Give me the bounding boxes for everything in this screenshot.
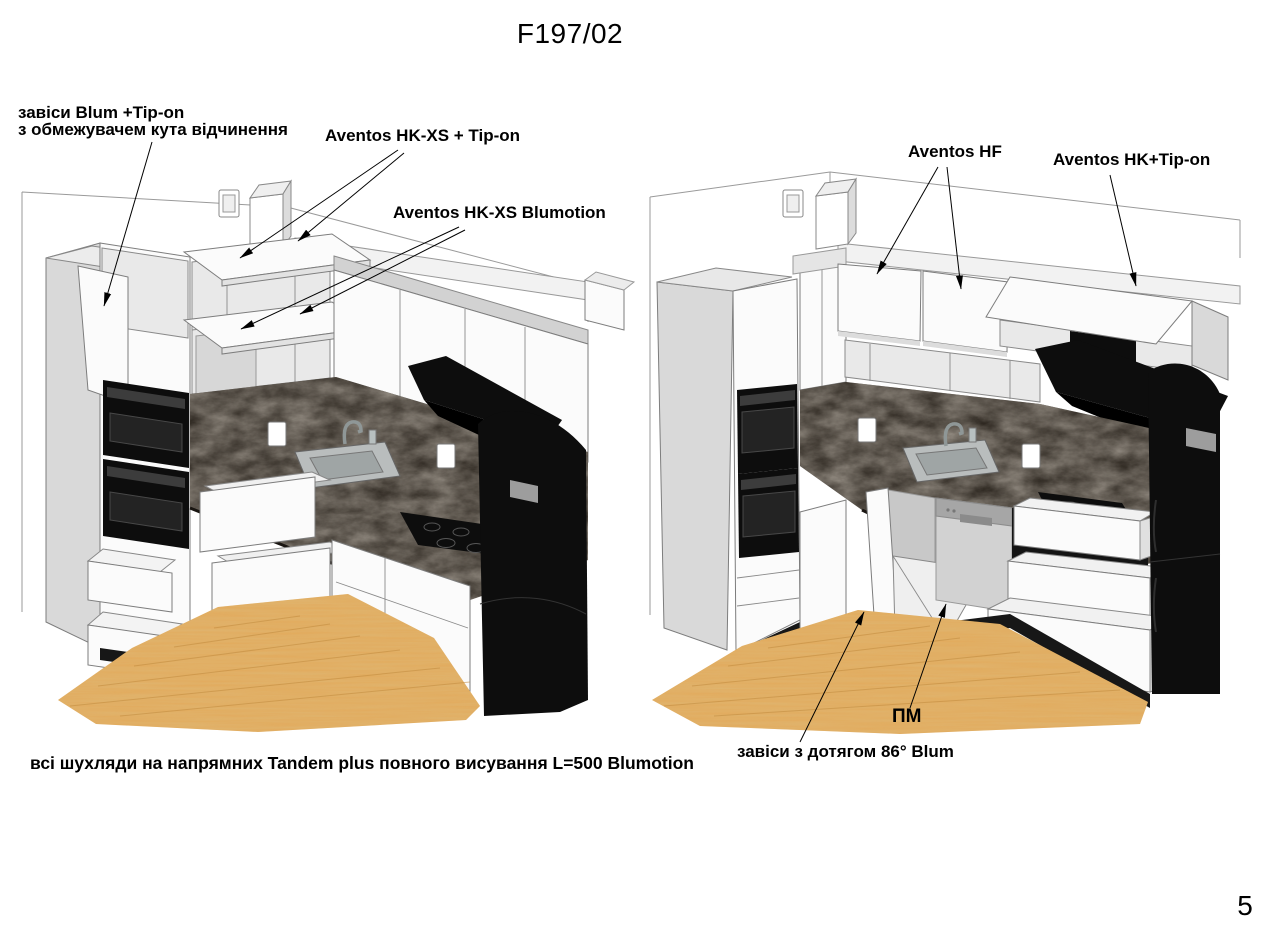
left-kitchen-render <box>22 181 634 732</box>
leader-hkxs-tipon-2 <box>298 153 404 241</box>
soap-dispenser <box>969 428 976 442</box>
page-number: 5 <box>1225 890 1265 922</box>
chimney-box <box>816 179 856 249</box>
right-refrigerator <box>1148 363 1220 694</box>
annotation-aventos-hk-tipon: Aventos HK+Tip-on <box>1053 151 1210 168</box>
soap-dispenser <box>369 430 376 444</box>
page-canvas <box>0 0 1280 946</box>
wall-socket <box>783 190 803 217</box>
wall-socket <box>268 422 286 446</box>
left-refrigerator <box>478 411 588 716</box>
hf-lift-door-left <box>838 264 921 341</box>
drawers-note: всі шухляди на напрямних Tandem plus пов… <box>30 753 694 774</box>
annotation-aventos-hf: Aventos HF <box>908 143 1002 160</box>
dishwasher <box>936 498 1012 612</box>
annotation-hinges-86: завіси з дотягом 86° Blum <box>737 743 954 760</box>
left-tall-cabinet <box>46 243 190 678</box>
annotation-hinges-tipon-line2: з обмежувачем кута відчинення <box>18 121 288 138</box>
annotation-aventos-hkxs-blumotion: Aventos HK-XS Blumotion <box>393 204 606 221</box>
annotation-pm: ПМ <box>892 708 921 725</box>
annotation-hinges-tipon-line1: завіси Blum +Tip-on <box>18 104 184 121</box>
right-kitchen-render <box>650 172 1240 734</box>
wall-socket <box>219 190 239 217</box>
page-title: F197/02 <box>440 18 700 50</box>
annotation-aventos-hkxs-tipon: Aventos HK-XS + Tip-on <box>325 127 520 144</box>
wall-socket <box>1022 444 1040 468</box>
oven-stack <box>737 384 799 558</box>
wall-socket <box>437 444 455 468</box>
leader-hk-tipon <box>1110 175 1136 286</box>
wall-socket <box>858 418 876 442</box>
